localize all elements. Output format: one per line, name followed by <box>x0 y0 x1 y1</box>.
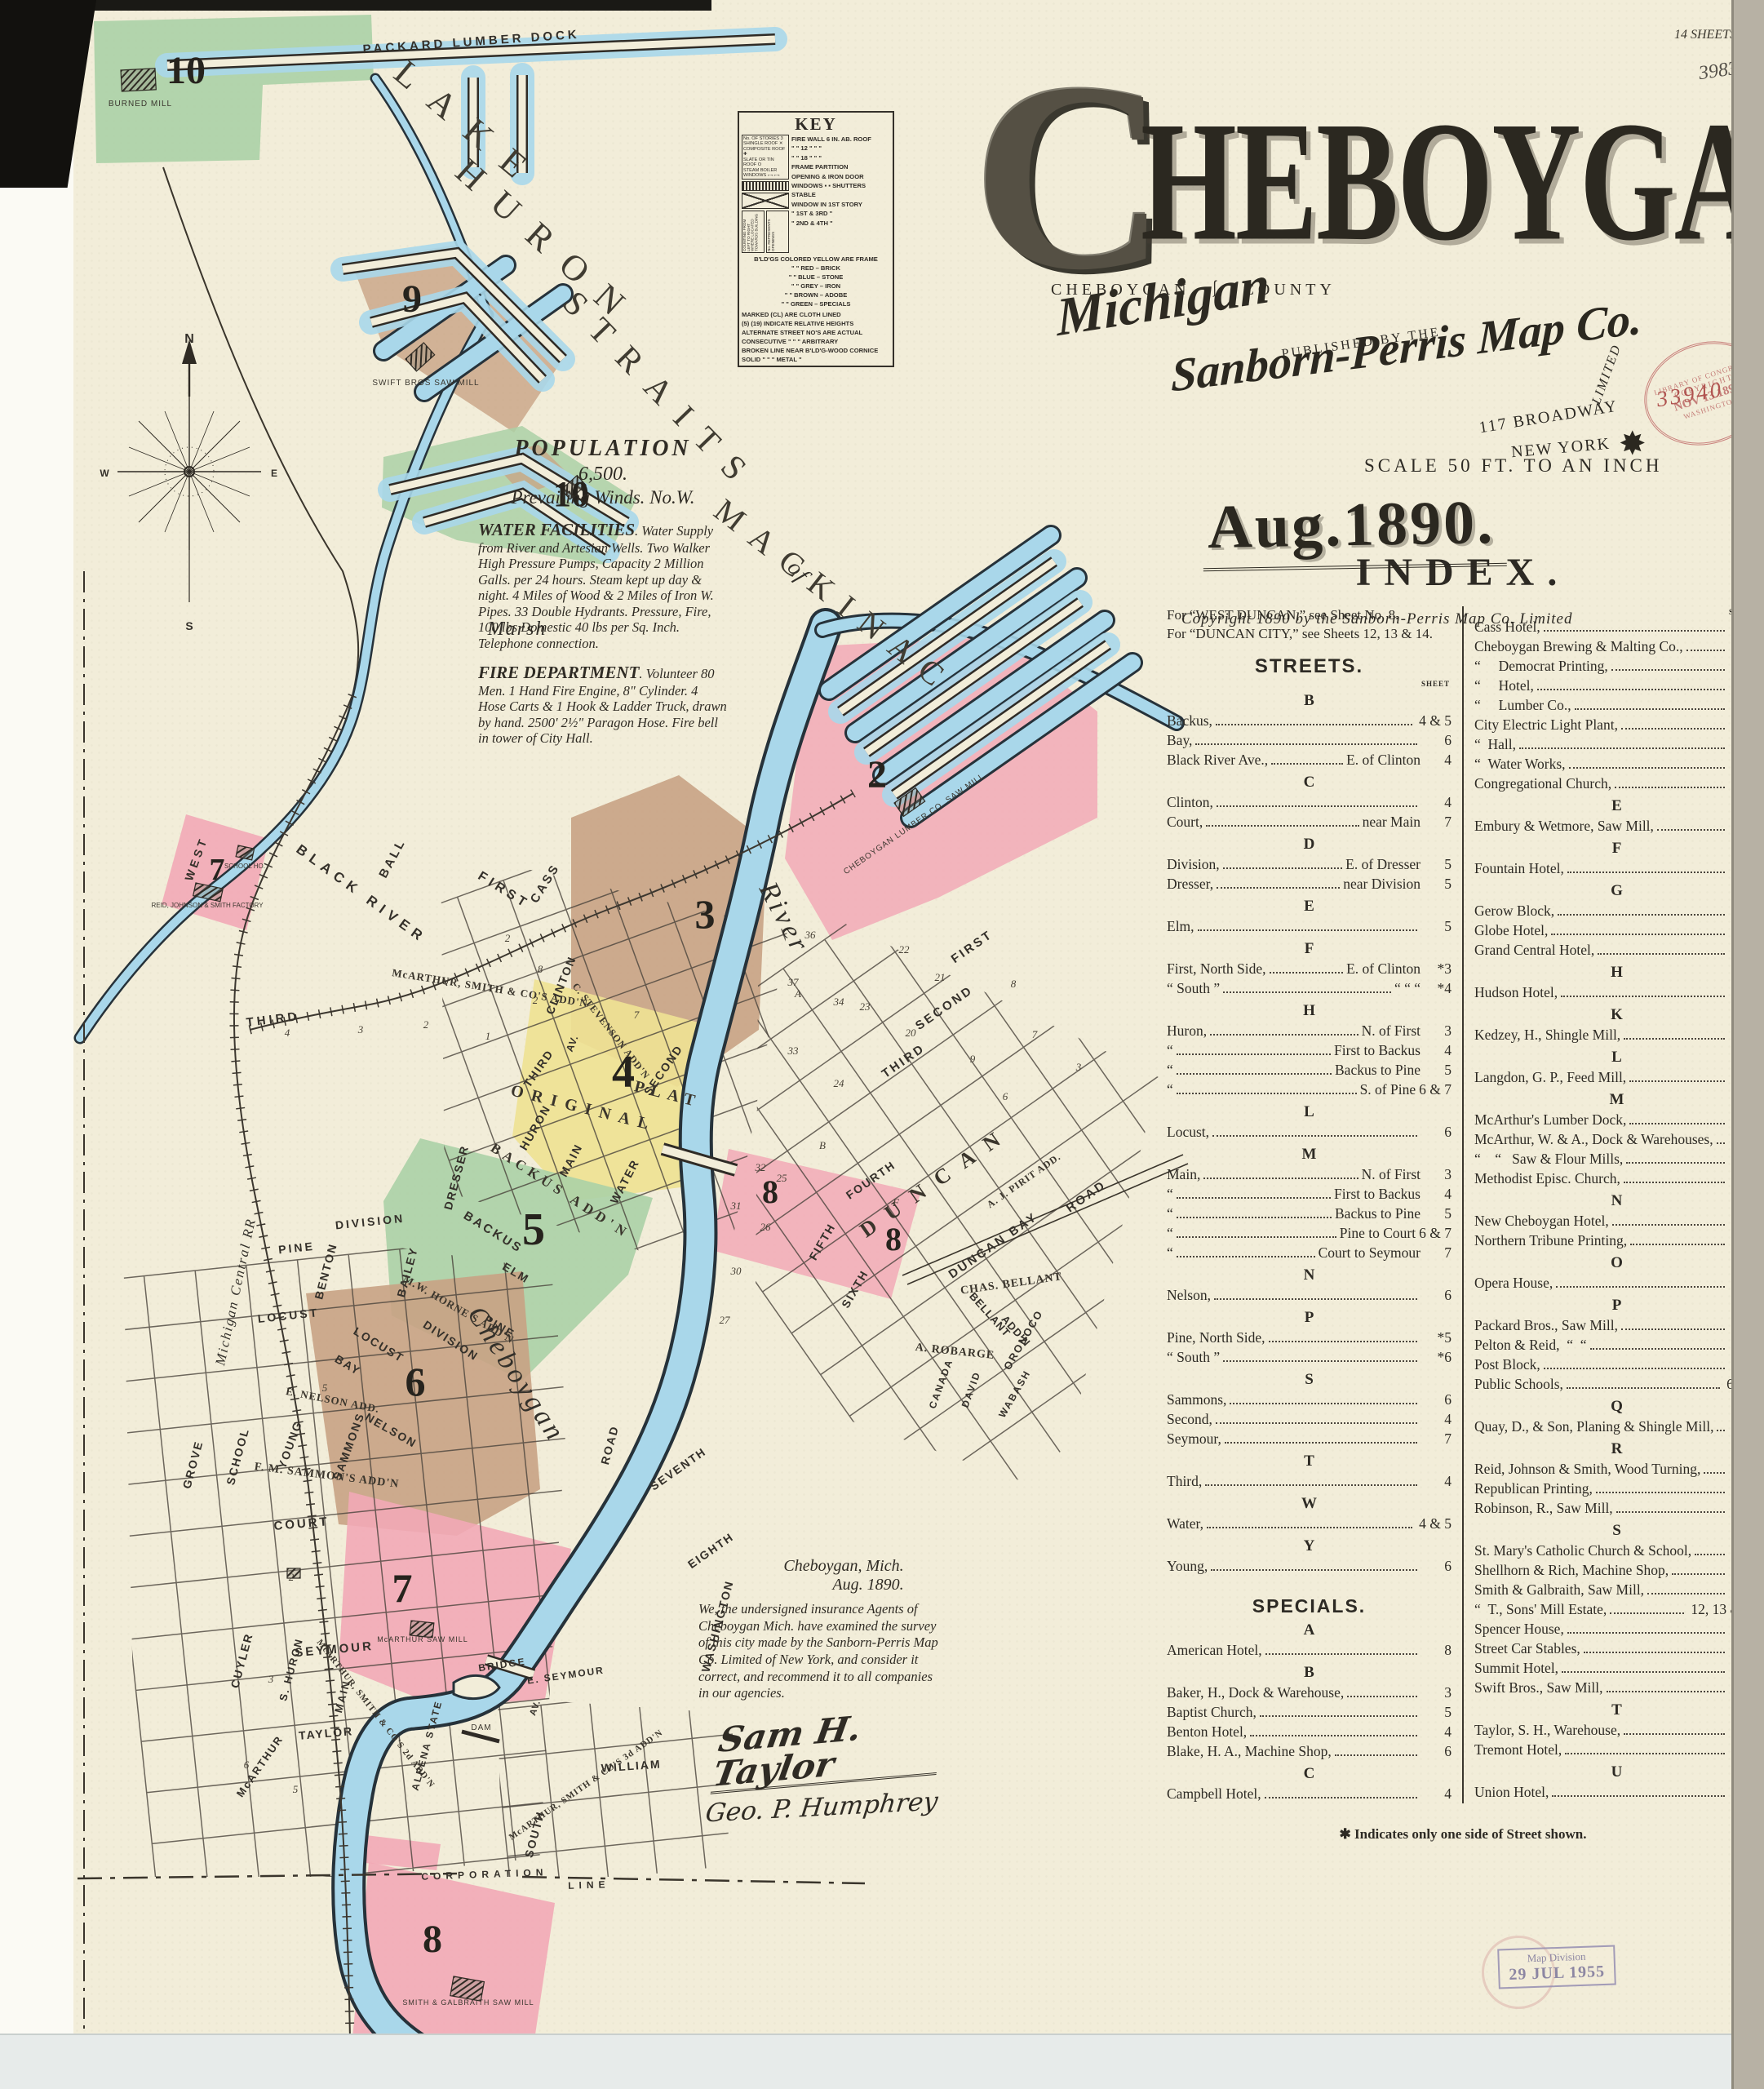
block-number: 32 <box>755 1161 767 1173</box>
map-labels: PACKARD LUMBER DOCK10BURNED MILL9SWIFT B… <box>100 28 1109 2007</box>
map-label: McARTHUR, SMITH & CO'S 3d ADD'N <box>507 1728 665 1842</box>
signature-taylor: Sam H. Taylor <box>711 1704 948 1794</box>
certification-place: Cheboygan, Mich. <box>747 1557 940 1576</box>
key-item: WINDOWS ▪ ▪ SHUTTERS <box>791 181 890 190</box>
index-entry: Backus,4 & 5 <box>1167 711 1452 730</box>
index-entry: Locust,6 <box>1167 1122 1452 1142</box>
block-number: 5 <box>322 1382 328 1394</box>
index-letter-header: U <box>1474 1763 1759 1781</box>
index-entry: Main,N. of First3 <box>1167 1164 1452 1184</box>
river-island <box>454 1675 499 1698</box>
key-item: " " 18 " " " <box>791 153 890 162</box>
specials-heading: SPECIALS. <box>1167 1595 1452 1617</box>
key-glyph-row: SLATE OR TIN ROOF O <box>743 157 787 168</box>
index-entry: Shellhorn & Rich, Machine Shop,6 <box>1474 1560 1759 1580</box>
key-glyph-row: COMPOSITE ROOF ✚ <box>743 147 787 157</box>
index-letter-header: W <box>1167 1495 1452 1513</box>
block-number: 4 <box>285 1027 290 1039</box>
index-entry: Public Schools,6 & 7 <box>1474 1374 1759 1394</box>
index-entry: “ Democrat Printing,5 <box>1474 656 1759 676</box>
block-number: 3 <box>268 1673 274 1685</box>
index-entry: Republican Printing,6 <box>1474 1479 1759 1498</box>
index-entry: Tremont Hotel,5 <box>1474 1740 1759 1759</box>
map-label: THIRD <box>880 1041 929 1081</box>
map-scale: SCALE 50 FT. TO AN INCH <box>1364 455 1662 477</box>
block-number: 33 <box>787 1044 800 1057</box>
index-left-column: For “WEST DUNCAN,” see Sheet No. 8. For … <box>1167 606 1462 1803</box>
population-value: 6,500. <box>478 463 728 486</box>
index-entry: Reid, Johnson & Smith, Wood Turning,7 <box>1474 1459 1759 1479</box>
map-label: 8 <box>423 1918 442 1961</box>
key-color-item: " " GREEN – SPECIALS <box>742 299 890 308</box>
index-entry: Northern Tribune Printing,5 <box>1474 1231 1759 1250</box>
fire-department-text: FIRE DEPARTMENT. Volunteer 80 Men. 1 Han… <box>478 663 728 747</box>
map-key: KEY No. OF STORIES 3SHINGLE ROOF ✕COMPOS… <box>738 111 894 367</box>
index-entry: “Pine to Court6 & 7 <box>1167 1223 1452 1243</box>
index-letter-header: N <box>1474 1192 1759 1210</box>
city-info-block: POPULATION 6,500. Prevailing Winds. No.W… <box>478 436 728 747</box>
key-item: FRAME PARTITION <box>791 162 890 171</box>
index-entry: Union Hotel,4 <box>1474 1782 1759 1802</box>
map-label: WABASH <box>996 1368 1033 1420</box>
map-label: 7 <box>210 853 225 887</box>
index-letter-header: S <box>1474 1522 1759 1540</box>
map-label: 3 <box>695 891 716 937</box>
key-item: " " 12 " " " <box>791 144 890 153</box>
index-entry: Second,4 <box>1167 1409 1452 1429</box>
key-item: " 1ST & 3RD " <box>791 209 890 218</box>
compass-rose <box>117 339 261 602</box>
map-label: 6 <box>406 1359 426 1404</box>
block-number: 30 <box>730 1265 742 1277</box>
key-glyph-column: No. OF STORIES 3SHINGLE ROOF ✕COMPOSITE … <box>742 135 789 253</box>
scan-edge-right <box>1731 0 1764 2089</box>
map-label: N <box>184 332 194 346</box>
index-entry: Dresser,near Division5 <box>1167 874 1452 894</box>
index-entry: Kedzey, H., Shingle Mill,6 <box>1474 1025 1759 1044</box>
index-entry: Smith & Galbraith, Saw Mill,8 <box>1474 1580 1759 1599</box>
index-letter-header: M <box>1167 1146 1452 1164</box>
key-item: WINDOW IN 1ST STORY <box>791 200 890 209</box>
block-number: 3 <box>1075 1061 1082 1073</box>
index-entry: American Hotel,8 <box>1167 1640 1452 1660</box>
index-letter-header: S <box>1167 1371 1452 1389</box>
block-number: 25 <box>777 1172 788 1184</box>
block-number: 2 <box>533 994 539 1006</box>
sanborn-map-sheet: PACKARD LUMBER DOCK10BURNED MILL9SWIFT B… <box>0 0 1764 2089</box>
index-entry: Black River Ave.,E. of Clinton4 <box>1167 750 1452 770</box>
index-letter-header: E <box>1474 797 1759 815</box>
map-label: CUYLER <box>228 1631 255 1689</box>
map-label: AV. <box>528 1699 543 1717</box>
block-number: 7 <box>1032 1028 1038 1040</box>
map-label: Michigan Central RR <box>212 1217 259 1368</box>
index-letter-header: Q <box>1474 1398 1759 1416</box>
index-entry: Quay, D., & Son, Planing & Shingle Mill,… <box>1474 1417 1759 1436</box>
key-footer-item: MARKED (CL) ARE CLOTH LINED <box>742 310 890 319</box>
map-label: BURNED MILL <box>109 100 172 109</box>
index-entry: McArthur, W. & A., Dock & Warehouses,3 <box>1474 1129 1759 1149</box>
map-label: LINE <box>568 1878 610 1892</box>
block-number: 2 <box>505 932 511 944</box>
index-footnote: ✱ Indicates only one side of Street show… <box>1167 1826 1759 1843</box>
index-letter-header: D <box>1167 836 1452 854</box>
index-entry: Nelson,6 <box>1167 1285 1452 1305</box>
map-label: BALL <box>376 836 408 880</box>
streets-heading: STREETS. <box>1167 655 1452 678</box>
map-label: SWIFT BROS SAW MILL <box>372 379 479 388</box>
index-entry: Third,4 <box>1167 1471 1452 1491</box>
map-label: McARTHUR <box>234 1733 286 1799</box>
index-entry: First, North Side,E. of Clinton*3 <box>1167 959 1452 978</box>
index-letter-header: T <box>1474 1701 1759 1719</box>
index-letter-header: H <box>1474 964 1759 982</box>
key-item: STABLE <box>791 190 890 199</box>
certification-date: Aug. 1890. <box>796 1576 940 1594</box>
index-letter-header: H <box>1167 1002 1452 1020</box>
index-right-column: SHEET Cass Hotel,4Cheboygan Brewing & Ma… <box>1462 606 1759 1803</box>
title-initial: C <box>973 42 1167 312</box>
block-number: 8 <box>538 963 543 975</box>
index-entry: “ Hall,4 <box>1474 734 1759 754</box>
block-number: 27 <box>720 1314 731 1326</box>
index-letter-header: N <box>1167 1266 1452 1284</box>
map-label: 9 <box>402 277 422 321</box>
map-label: 2 <box>867 753 887 796</box>
map-label: A. J. PIRIT ADD. <box>985 1151 1063 1210</box>
block-number: 8 <box>1011 978 1017 990</box>
map-label: DAVID <box>960 1369 983 1408</box>
map-label: CORPORATION <box>421 1866 548 1882</box>
block-number: 31 <box>730 1200 742 1212</box>
index-letter-header: G <box>1474 882 1759 900</box>
index-entry: Fountain Hotel,5 <box>1474 858 1759 878</box>
key-item: OPENING & IRON DOOR <box>791 172 890 181</box>
block-number: 24 <box>834 1077 845 1089</box>
map-label: CASS <box>528 861 563 906</box>
index-entry: Street Car Stables,3 <box>1474 1639 1759 1658</box>
prevailing-winds: Prevailing Winds. No.W. <box>478 487 728 508</box>
block-number: 2 <box>423 1018 429 1031</box>
index-entry: Young,6 <box>1167 1556 1452 1576</box>
index-entry: Embury & Wetmore, Saw Mill,11 <box>1474 816 1759 836</box>
map-label: COURT <box>273 1515 330 1533</box>
key-side-note-1: COUNTING FROM LEFT TO RIGHT WHERE LOCATE… <box>742 211 765 253</box>
map-date: Aug.1890. <box>1202 487 1507 571</box>
index-entry: Blake, H. A., Machine Shop,6 <box>1167 1741 1452 1761</box>
map-label: 7 <box>392 1565 413 1611</box>
map-label: S <box>185 619 193 632</box>
sheet-column-label: SHEET <box>1168 680 1450 688</box>
index-entry: “First to Backus4 <box>1167 1040 1452 1060</box>
index-entry: Post Block,5 <box>1474 1355 1759 1374</box>
index-entry: New Cheboygan Hotel,4 <box>1474 1211 1759 1231</box>
map-label: REID, JOHNSON & SMITH FACTORY <box>151 902 264 909</box>
key-hatch-sample <box>742 181 789 191</box>
index-entry: Spencer House,4 <box>1474 1619 1759 1639</box>
title-city: HEBOYGAN <box>1141 96 1764 268</box>
index-entry: “First to Backus4 <box>1167 1184 1452 1204</box>
map-label: WILLIAM <box>601 1757 662 1774</box>
block-number: 3 <box>357 1023 364 1036</box>
index-letter-header: R <box>1474 1440 1759 1458</box>
index-entry: Pine, North Side,*5 <box>1167 1328 1452 1347</box>
index-entry: Methodist Episc. Church,6 <box>1474 1169 1759 1188</box>
index-entry: Clinton,4 <box>1167 792 1452 812</box>
index-entry: “ Water Works,3 <box>1474 754 1759 774</box>
index-letter-header: L <box>1474 1049 1759 1067</box>
key-color-list: B'LD'GS COLORED YELLOW ARE FRAME" " RED … <box>742 255 890 308</box>
map-label: FIRST <box>476 869 532 911</box>
map-label: ROAD <box>1064 1178 1110 1215</box>
map-label: McARTHUR SAW MILL <box>377 1635 468 1643</box>
index-entry: Huron,N. of First3 <box>1167 1021 1452 1040</box>
key-title: KEY <box>742 114 890 135</box>
block-number: 22 <box>899 943 911 956</box>
map-label: DAM <box>471 1723 491 1732</box>
block-number: 6 <box>1003 1090 1008 1102</box>
index-entry: Swift Bros., Saw Mill,9 <box>1474 1678 1759 1697</box>
index-entry: Packard Bros., Saw Mill,10 <box>1474 1315 1759 1335</box>
index-entry: Campbell Hotel,4 <box>1167 1784 1452 1803</box>
index-entry: “ South ”*6 <box>1167 1347 1452 1367</box>
key-symbol-list: FIRE WALL 6 IN. AB. ROOF" " 12 " " "" " … <box>791 135 890 253</box>
index-entry: Taylor, S. H., Warehouse,3 <box>1474 1720 1759 1740</box>
map-label: PINE <box>277 1240 315 1257</box>
index-letter-header: L <box>1167 1103 1452 1121</box>
map-label: 4 <box>612 1047 635 1098</box>
key-color-item: " " BROWN – ADOBE <box>742 291 890 299</box>
index-entry: “Court to Seymour7 <box>1167 1243 1452 1262</box>
block-number: 9 <box>970 1053 976 1065</box>
index-entry: Water,4 & 5 <box>1167 1514 1452 1533</box>
map-label: ROAD <box>598 1424 621 1466</box>
index-entry: “ Lumber Co.,2 <box>1474 695 1759 715</box>
map-label: FIRST <box>949 928 996 966</box>
index-entry: Hudson Hotel,5 <box>1474 982 1759 1002</box>
scan-edge-left <box>0 0 73 2089</box>
copyright-line: Copyright 1890 by the Sanborn-Perris Map… <box>1181 610 1572 628</box>
sheet-count: 14 SHEETS <box>1674 28 1736 42</box>
index-letter-header: F <box>1474 840 1759 858</box>
key-footer-item: SOLID " " " METAL " <box>742 355 890 364</box>
index-entry: Baptist Church,5 <box>1167 1702 1452 1722</box>
index-letter-header: K <box>1474 1006 1759 1024</box>
index-letter-header: Y <box>1167 1537 1452 1555</box>
population-title: POPULATION <box>478 436 728 462</box>
key-color-item: " " BLUE – STONE <box>742 273 890 282</box>
index-entry: Seymour,7 <box>1167 1429 1452 1448</box>
index-letter-header: T <box>1167 1453 1452 1470</box>
index-entry: Summit Hotel,7 <box>1474 1658 1759 1678</box>
index-entry: Bay,6 <box>1167 730 1452 750</box>
index-letter-header: P <box>1474 1297 1759 1315</box>
index-entry: Opera House,4 <box>1474 1273 1759 1293</box>
index-letter-header: C <box>1167 1765 1452 1783</box>
index-entry: Congregational Church,6 <box>1474 774 1759 793</box>
index-block: INDEX. For “WEST DUNCAN,” see Sheet No. … <box>1167 550 1759 1843</box>
index-entry: Elm,5 <box>1167 916 1452 936</box>
index-entry: Sammons,6 <box>1167 1390 1452 1409</box>
key-item: FIRE WALL 6 IN. AB. ROOF <box>791 135 890 144</box>
map-label: GROVE <box>180 1439 206 1490</box>
key-side-note-2: No. REPRESENTS OPENINGS <box>766 211 789 253</box>
key-glyph-row: WINDOWS ⌐¬ ⌐¬ <box>743 173 787 178</box>
dam-bar <box>462 1732 499 1741</box>
index-entry: Robinson, R., Saw Mill,11 <box>1474 1498 1759 1518</box>
water-facilities-text: WATER FACILITIES. Water Supply from Rive… <box>478 520 728 651</box>
map-label: SCHOOL <box>224 1426 251 1487</box>
key-footer-item: BROKEN LINE NEAR B'LD'G-WOOD CORNICE <box>742 346 890 355</box>
block-number: 36 <box>804 929 817 941</box>
index-letter-header: P <box>1167 1309 1452 1327</box>
block-number: 21 <box>935 971 946 983</box>
index-entry: Division,E. of Dresser5 <box>1167 854 1452 874</box>
index-entry: Langdon, G. P., Feed Mill,5 <box>1474 1067 1759 1087</box>
key-stable-symbol <box>742 193 789 209</box>
index-entry: “ Hotel,4 <box>1474 676 1759 695</box>
index-entry: “ “ Saw & Flour Mills,7 <box>1474 1149 1759 1169</box>
index-entry: “ T., Sons' Mill Estate,12, 13 & 14 <box>1474 1599 1759 1619</box>
key-color-item: B'LD'GS COLORED YELLOW ARE FRAME <box>742 255 890 264</box>
map-label: YOUNG <box>275 1419 304 1470</box>
map-label: W <box>100 468 109 479</box>
map-label: SMITH & GALBRAITH SAW MILL <box>402 1998 534 2007</box>
key-footer-list: MARKED (CL) ARE CLOTH LINED(5) (19) INDI… <box>742 310 890 364</box>
index-entry: Cheboygan Brewing & Malting Co.,7 <box>1474 636 1759 656</box>
map-label: A. ROBARGE <box>915 1342 995 1362</box>
index-entry: Globe Hotel,5 <box>1474 920 1759 940</box>
block-number: 34 <box>833 996 845 1008</box>
block-number: 5 <box>293 1783 299 1795</box>
key-glyph-row: SHINGLE ROOF ✕ <box>743 141 787 146</box>
index-entry: McArthur's Lumber Dock,2 <box>1474 1110 1759 1129</box>
map-division-stamp: Map Division 29 JUL 1955 <box>1497 1945 1616 1989</box>
index-entry: City Electric Light Plant,7 <box>1474 715 1759 734</box>
block-number: B <box>819 1139 826 1151</box>
key-footer-item: CONSECUTIVE " " " ARBITRARY <box>742 337 890 346</box>
block-number: 26 <box>760 1221 772 1233</box>
agents-certification: Cheboygan, Mich. Aug. 1890. We, the unde… <box>698 1557 940 1822</box>
block-number: 7 <box>634 1009 640 1021</box>
block-number: 20 <box>906 1027 917 1039</box>
index-letter-header: B <box>1167 692 1452 710</box>
index-entry: “ South ”“ “ “*4 <box>1167 978 1452 998</box>
key-footer-item: (5) (19) INDICATE RELATIVE HEIGHTS <box>742 319 890 328</box>
index-entry: Court,near Main7 <box>1167 812 1452 832</box>
block-number: 6 <box>244 1759 250 1771</box>
index-entry: Grand Central Hotel,5 <box>1474 940 1759 960</box>
index-letter-header: F <box>1167 940 1452 958</box>
index-entry: “Backus to Pine5 <box>1167 1060 1452 1080</box>
index-entry: Gerow Block,5 <box>1474 901 1759 920</box>
map-label: E <box>271 468 277 479</box>
certification-body: We, the undersigned insurance Agents of … <box>698 1601 940 1702</box>
index-entry: Benton Hotel,4 <box>1167 1722 1452 1741</box>
index-letter-header: B <box>1167 1664 1452 1682</box>
index-letter-header: A <box>1167 1621 1452 1639</box>
block-number: 37 <box>787 976 800 988</box>
index-letter-header: M <box>1474 1091 1759 1109</box>
map-label: 10 <box>166 49 206 92</box>
scan-edge-bottom <box>0 2034 1764 2089</box>
key-color-item: " " GREY – IRON <box>742 282 890 291</box>
key-footer-item: ALTERNATE STREET NO'S ARE ACTUAL <box>742 328 890 337</box>
block-number: 2 <box>289 1571 295 1583</box>
map-label: BLACK RIVER <box>294 841 430 947</box>
scan-edge-top <box>0 0 711 11</box>
index-entry: Pelton & Reid, “ “10 <box>1474 1335 1759 1355</box>
map-label: THIRD <box>246 1009 300 1030</box>
block-number: 23 <box>860 1000 871 1013</box>
index-letter-header: E <box>1167 898 1452 916</box>
map-label: S. HURON <box>277 1636 305 1702</box>
index-entry: St. Mary's Catholic Church & School,8 <box>1474 1541 1759 1560</box>
index-letter-header: C <box>1167 774 1452 792</box>
block-number: 1 <box>485 1030 491 1042</box>
block-number: A <box>794 987 801 1000</box>
map-label: 5 <box>522 1204 545 1255</box>
index-entry: Baker, H., Dock & Warehouse,3 <box>1167 1683 1452 1702</box>
key-item: " 2ND & 4TH " <box>791 219 890 228</box>
map-label: SCHOOL HO. <box>224 863 265 870</box>
block-number: F <box>892 1196 900 1209</box>
map-label: TAYLOR <box>298 1724 353 1742</box>
signature-humphrey: Geo. P. Humphrey <box>704 1786 940 1828</box>
index-entry: “Backus to Pine5 <box>1167 1204 1452 1223</box>
index-entry: “S. of Pine6 & 7 <box>1167 1080 1452 1099</box>
index-letter-header: O <box>1474 1254 1759 1272</box>
key-color-item: " " RED – BRICK <box>742 264 890 273</box>
